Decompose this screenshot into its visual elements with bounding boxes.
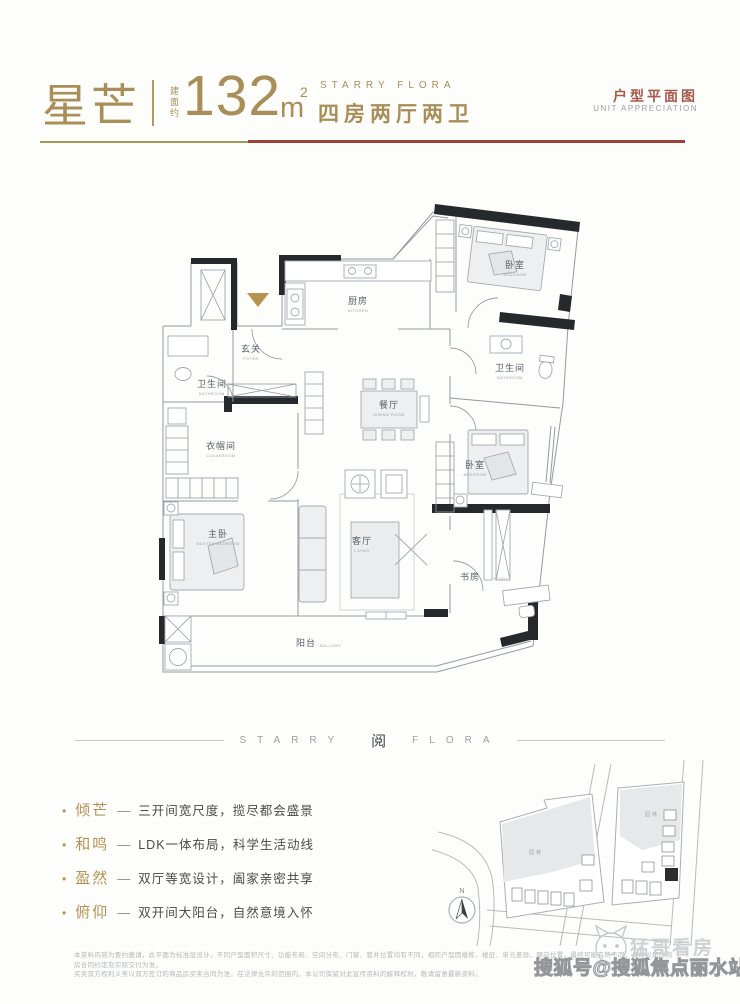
room-label-foyer: 玄关 — [241, 343, 261, 354]
area-value: 132 — [183, 63, 281, 129]
floorplan-poster-page: 星芒 建面约 132 m 2 STARRY FLORA 四房两厅两卫 户型平面图… — [0, 0, 740, 1004]
room-label-balcony: 阳台 — [296, 637, 316, 648]
series-english-name: STARRY FLORA — [320, 80, 456, 91]
feature-list: • 倾芒 — 三开间宽尺度，揽尽都会盛景 • 和鸣 — LDK一体布局，科学生活… — [62, 799, 314, 935]
entry-triangle-marker — [247, 293, 269, 307]
svg-text:CLOAKROOM: CLOAKROOM — [206, 454, 235, 458]
room-label-bedroom-top: 卧室 — [505, 259, 525, 270]
svg-text:KITCHEN: KITCHEN — [348, 309, 368, 313]
area-prefix: 建面约 — [168, 86, 179, 119]
room-label-bathroom-left: 卫生间 — [197, 378, 227, 389]
feature-item: • 俯仰 — 双开间大阳台，自然意境入怀 — [62, 901, 314, 922]
room-label-living: 客厅 — [352, 535, 372, 546]
room-label-study: 书房 — [460, 571, 480, 582]
unit-name: 星芒 — [42, 70, 140, 136]
room-label-bedroom-mid: 卧室 — [465, 459, 485, 470]
svg-text:BALCONY: BALCONY — [320, 644, 342, 648]
band-line-left — [75, 740, 224, 741]
svg-text:LIVING: LIVING — [354, 549, 369, 553]
watermark-publisher: 搜狐号@搜狐焦点丽水站 — [534, 953, 740, 980]
svg-text:BATHROOM: BATHROOM — [497, 376, 523, 380]
unit-layout-text: 四房两厅两卫 — [318, 98, 474, 128]
svg-text:DINING ROOM: DINING ROOM — [373, 413, 405, 417]
svg-text:园林: 园林 — [645, 811, 659, 818]
feature-item: • 和鸣 — LDK一体布局，科学生活动线 — [62, 833, 314, 854]
room-label-bathroom-right: 卫生间 — [495, 362, 525, 373]
room-label-master: 主卧 — [208, 528, 228, 539]
svg-text:BEDROOM: BEDROOM — [463, 473, 486, 477]
area-superscript: 2 — [300, 84, 308, 100]
room-label-dining: 餐厅 — [379, 399, 399, 410]
compass-north-label: N — [459, 888, 464, 895]
page-subtitle: UNIT APPRECIATION — [520, 104, 698, 113]
rule-red — [248, 140, 685, 143]
band-text-flora: FLORA — [412, 735, 500, 746]
bullet-icon: • — [62, 872, 66, 886]
bullet-icon: • — [62, 804, 66, 818]
compass: N — [449, 888, 475, 923]
floorplan-drawing: 厨房 KITCHEN 玄关 FOYER 卫生间 BATHROOM 衣帽间 CLO… — [148, 186, 600, 691]
svg-text:园林: 园林 — [529, 849, 543, 856]
bullet-icon: • — [62, 838, 66, 852]
brand-emblem-glyph: 阅 — [371, 730, 386, 751]
svg-text:MASTER BEDROOM: MASTER BEDROOM — [196, 542, 240, 546]
bullet-icon: • — [62, 906, 66, 920]
brand-band: STARRY 阅 FLORA — [75, 730, 665, 751]
location-site-map: 园林 园林 N — [432, 760, 724, 946]
svg-text:FOYER: FOYER — [243, 357, 259, 361]
svg-text:BEDROOM: BEDROOM — [503, 273, 526, 277]
page-title: 户型平面图 — [520, 86, 698, 106]
feature-item: • 倾芒 — 三开间宽尺度，揽尽都会盛景 — [62, 799, 314, 820]
rule-gold — [40, 141, 248, 143]
band-line-right — [517, 740, 666, 741]
svg-text:BATHROOM: BATHROOM — [199, 392, 225, 396]
svg-text:STUDY: STUDY — [493, 577, 508, 581]
header-divider — [152, 80, 154, 126]
highlighted-building — [665, 868, 678, 881]
room-label-kitchen: 厨房 — [348, 295, 368, 306]
room-label-cloakroom: 衣帽间 — [206, 440, 236, 451]
band-text-starry: STARRY — [240, 735, 346, 746]
feature-item: • 盈然 — 双厅等宽设计，阖家亲密共享 — [62, 867, 314, 888]
